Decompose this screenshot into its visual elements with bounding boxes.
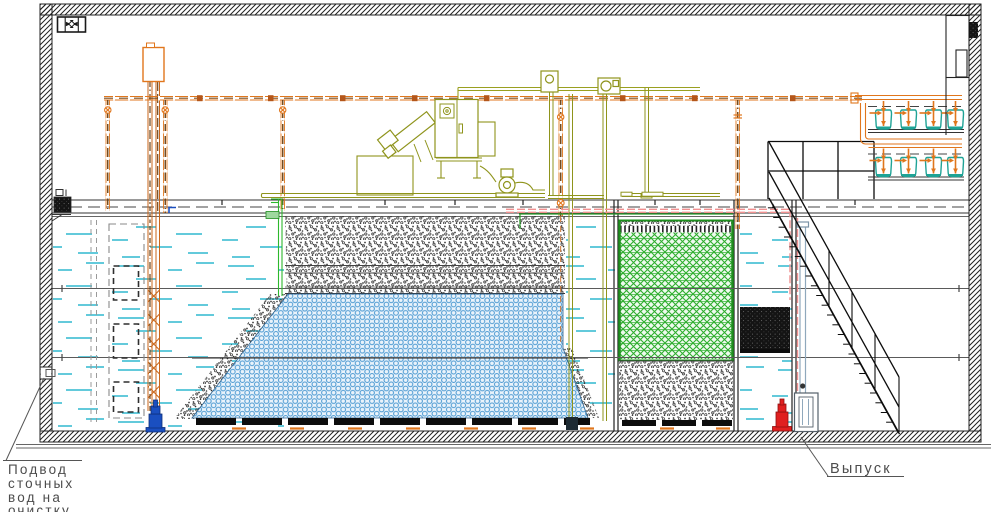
svg-text:сточных: сточных — [8, 476, 74, 491]
svg-text:очистку: очистку — [8, 503, 71, 512]
svg-text:Выпуск: Выпуск — [830, 461, 892, 477]
svg-text:Подвод: Подвод — [8, 462, 68, 477]
